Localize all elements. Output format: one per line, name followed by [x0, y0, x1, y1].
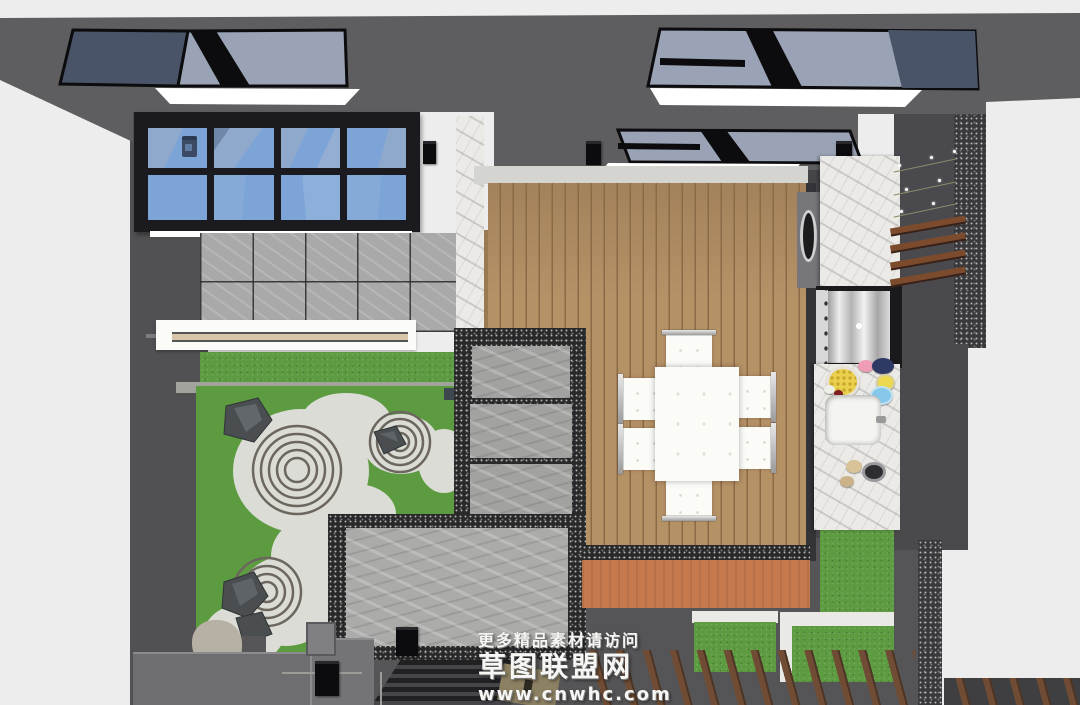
window-wall: [134, 112, 420, 232]
bollard-light-icon: [315, 661, 339, 696]
planter-cube: [306, 622, 336, 656]
window-pane: [281, 128, 340, 168]
chair-back-rail: [771, 372, 776, 422]
wall-light-icon: [423, 141, 436, 164]
sink-faucet-icon: [876, 416, 886, 423]
window-pane: [214, 128, 273, 168]
burner-icon: [862, 462, 886, 482]
dish-beige: [840, 476, 854, 487]
courtyard-render: 更多精品素材请访问 草图联盟网 www.cnwhc.com: [0, 0, 1080, 705]
camera-icon: [182, 136, 197, 157]
string-light-bulb-icon: [898, 164, 901, 167]
marble-pillar: [456, 116, 484, 338]
watermark-line1: 更多精品素材请访问: [478, 632, 672, 650]
wall-light-icon: [586, 141, 601, 165]
deck-edge-curb: [474, 166, 808, 184]
chair-back-rail: [771, 423, 776, 473]
orange-strip-border: [582, 545, 810, 561]
bbq-knob-panel: [816, 290, 828, 364]
stone-slab: [470, 464, 572, 520]
chair-back-rail: [618, 424, 623, 474]
dish-beige: [846, 460, 862, 473]
skylight-right-upper: [648, 29, 978, 107]
window-pane: [148, 128, 207, 168]
paving-guide-line: [380, 672, 382, 705]
lawn-edging: [780, 612, 894, 626]
dining-chair: [666, 480, 712, 516]
lightwell-right: [650, 88, 922, 107]
stone-slab: [470, 404, 572, 458]
string-light-bulb-icon: [932, 202, 935, 205]
window-pane: [148, 175, 207, 220]
watermark: 更多精品素材请访问 草图联盟网 www.cnwhc.com: [478, 632, 672, 705]
window-pane: [214, 175, 273, 220]
string-light-bulb-icon: [930, 156, 933, 159]
window-pane: [347, 128, 406, 168]
watermark-line3: www.cnwhc.com: [478, 685, 672, 705]
bbq-grill-lid: [828, 291, 890, 363]
patio-tiles: [200, 233, 462, 332]
dining-chair: [666, 335, 712, 371]
chair-back-rail: [618, 374, 623, 424]
food-plate-navy: [872, 358, 894, 374]
slab-platform: [346, 528, 568, 646]
round-grill-door-icon: [800, 210, 817, 262]
chair-back-rail: [662, 516, 716, 521]
stone-slab: [472, 346, 570, 398]
string-light-bulb-icon: [953, 150, 956, 153]
food-plate-white: [824, 385, 835, 394]
chair-back-rail: [662, 330, 716, 335]
kitchen-counter-top: [820, 156, 900, 286]
corner-boardwalk: [944, 678, 1080, 705]
string-light-bulb-icon: [905, 188, 908, 191]
terracotta-strip: [582, 560, 810, 608]
kitchen-sink: [825, 395, 881, 445]
window-pane: [347, 175, 406, 220]
watermark-line2: 草图联盟网: [478, 651, 672, 683]
string-light-bulb-icon: [900, 210, 903, 213]
bench-rail: [172, 332, 408, 342]
lightwell-left: [155, 88, 360, 105]
lawn-patch: [820, 526, 894, 612]
string-light-bulb-icon: [938, 179, 941, 182]
lawn-strip: [200, 352, 458, 382]
bollard-light-icon: [396, 627, 418, 656]
white-bench: [156, 320, 416, 350]
window-panes: [148, 128, 406, 220]
skylight-left: [60, 30, 360, 105]
window-pane: [281, 175, 340, 220]
dining-table: [655, 367, 739, 481]
